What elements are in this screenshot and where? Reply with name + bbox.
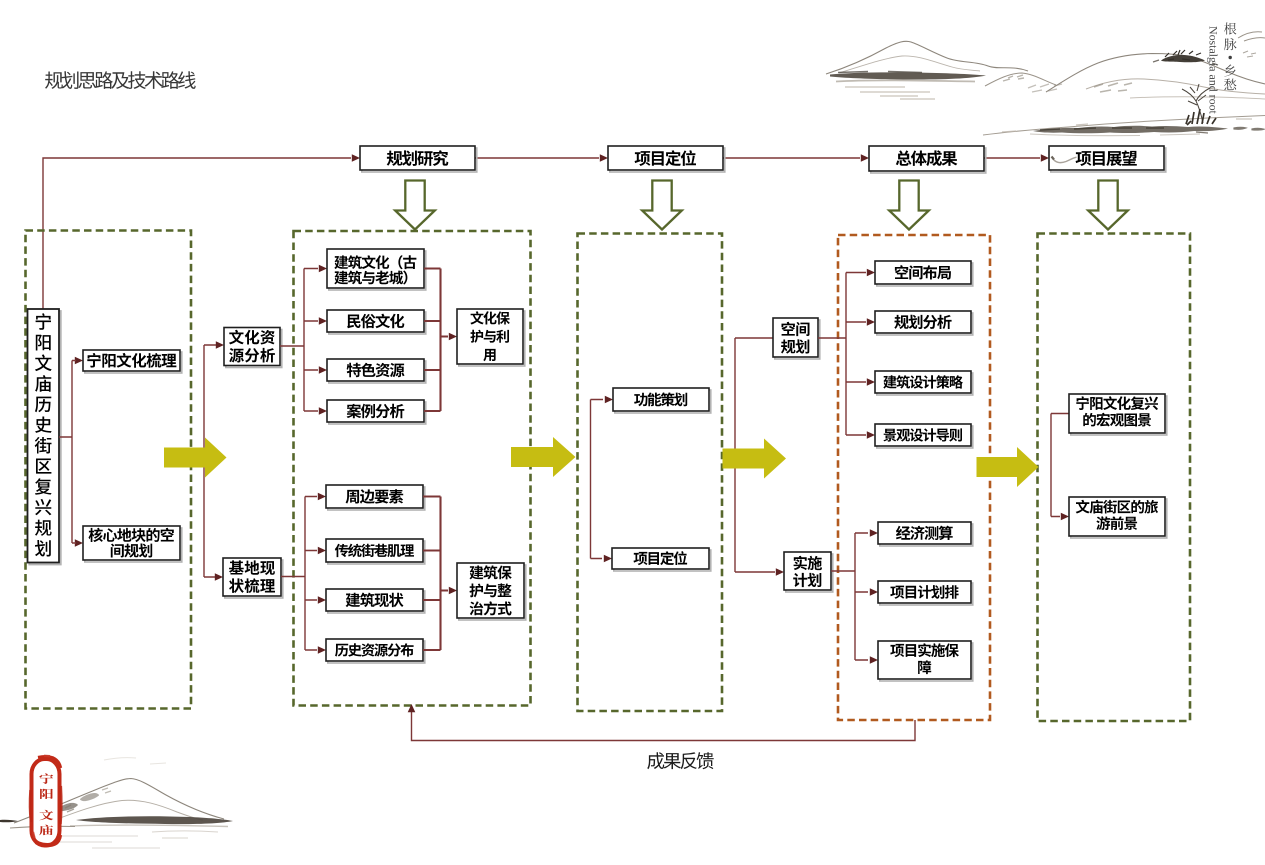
svg-text:Nostalgia and root: Nostalgia and root [1207, 26, 1221, 115]
